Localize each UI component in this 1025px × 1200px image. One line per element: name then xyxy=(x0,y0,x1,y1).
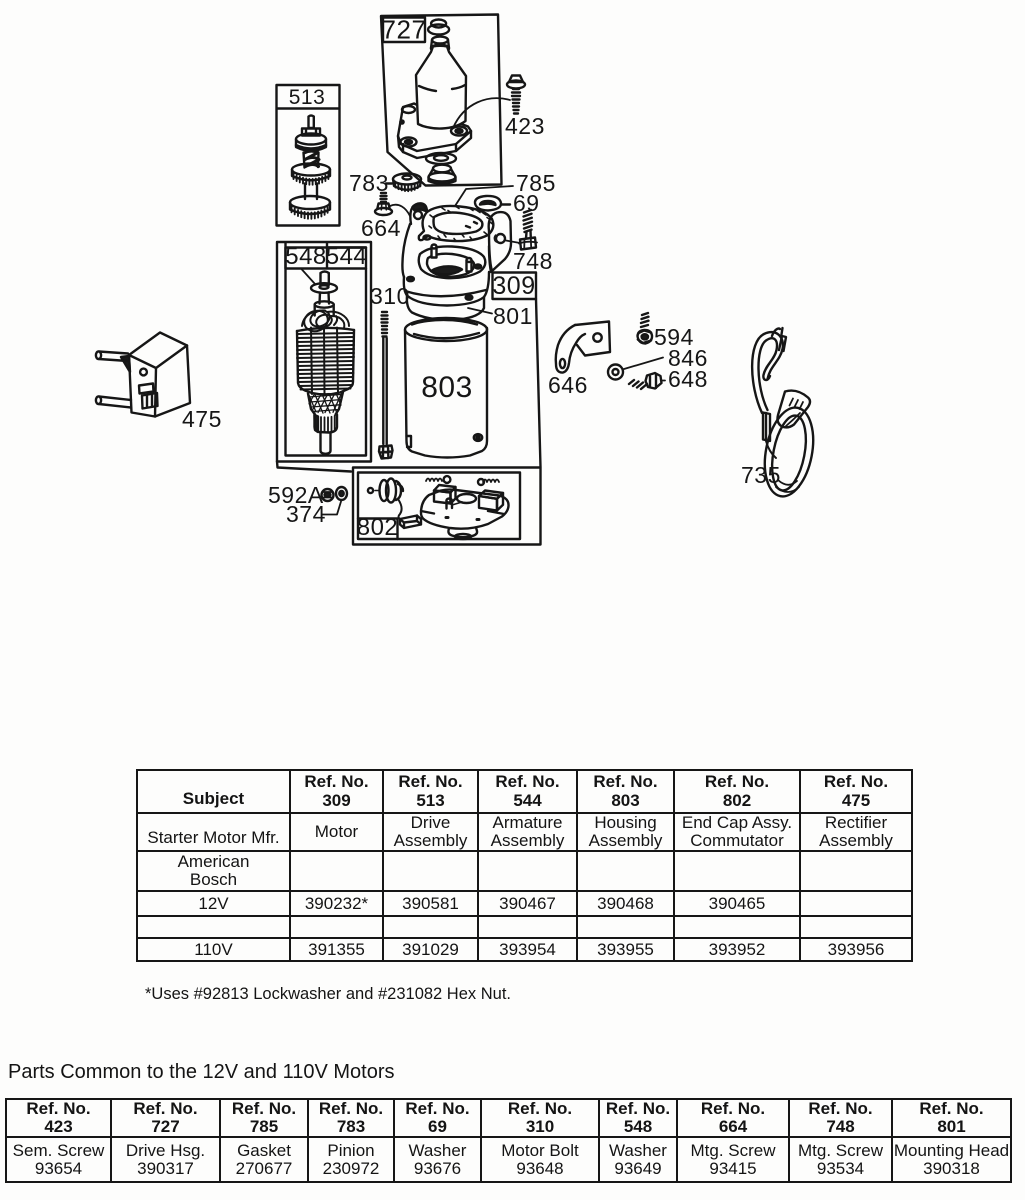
svg-text:544: 544 xyxy=(326,243,368,270)
svg-text:374: 374 xyxy=(286,501,326,527)
svg-text:475: 475 xyxy=(182,406,222,432)
svg-text:648: 648 xyxy=(668,366,708,392)
svg-text:735: 735 xyxy=(741,462,781,488)
svg-text:548: 548 xyxy=(285,243,327,270)
svg-text:802: 802 xyxy=(357,514,399,541)
svg-text:309: 309 xyxy=(492,272,535,300)
svg-text:513: 513 xyxy=(289,86,326,109)
svg-text:748: 748 xyxy=(513,248,553,274)
svg-text:423: 423 xyxy=(505,113,545,139)
svg-text:664: 664 xyxy=(361,215,401,241)
svg-text:803: 803 xyxy=(421,371,473,404)
svg-text:310: 310 xyxy=(370,283,410,309)
svg-text:727: 727 xyxy=(382,15,427,45)
svg-text:801: 801 xyxy=(493,303,533,329)
svg-text:646: 646 xyxy=(548,372,588,398)
